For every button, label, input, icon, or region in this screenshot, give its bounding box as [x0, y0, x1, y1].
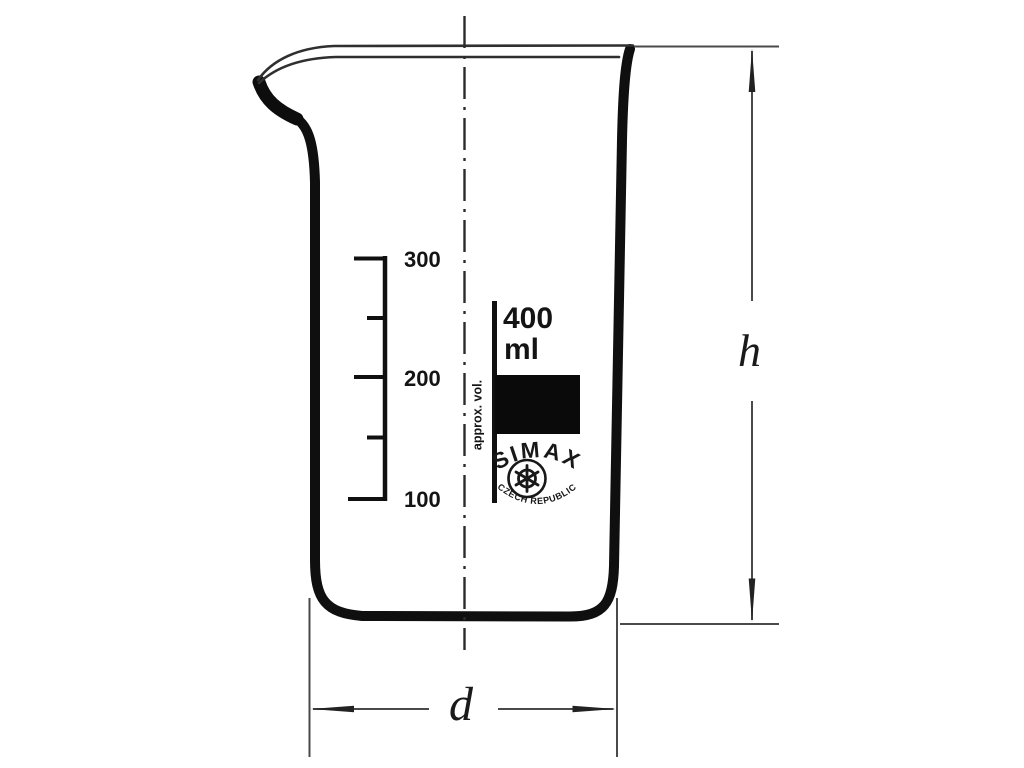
h-arrow-up: [749, 49, 756, 93]
scale-label-300: 300: [404, 247, 441, 272]
approx-vol-label: approx. vol.: [470, 380, 484, 450]
diameter-label: d: [449, 678, 474, 731]
d-arrow-left: [311, 706, 355, 713]
drawing-canvas: 300 200 100 400 ml approx. vol. SIMAX CZ…: [0, 0, 1024, 768]
scale-label-200: 200: [404, 366, 441, 391]
scale-label-100: 100: [404, 487, 441, 512]
fill-level-block: [495, 375, 580, 434]
d-arrow-right: [573, 706, 617, 713]
capacity-unit: ml: [504, 333, 539, 366]
beaker-technical-drawing: 300 200 100 400 ml approx. vol. SIMAX CZ…: [0, 0, 1024, 768]
beaker-spout-lip: [259, 82, 297, 119]
beaker-outline: [258, 46, 633, 617]
h-arrow-down: [749, 579, 756, 623]
height-dimension: h: [620, 47, 779, 625]
height-label: h: [738, 325, 761, 376]
beaker-rim-inner-line: [259, 57, 619, 83]
diameter-dimension: d: [310, 598, 618, 757]
beaker-rim-top-line: [258, 46, 633, 81]
graduation-scale: 300 200 100: [348, 247, 441, 512]
brand-logo: SIMAX CZECH REPUBLIC: [488, 437, 586, 506]
capacity-value: 400: [503, 302, 553, 335]
